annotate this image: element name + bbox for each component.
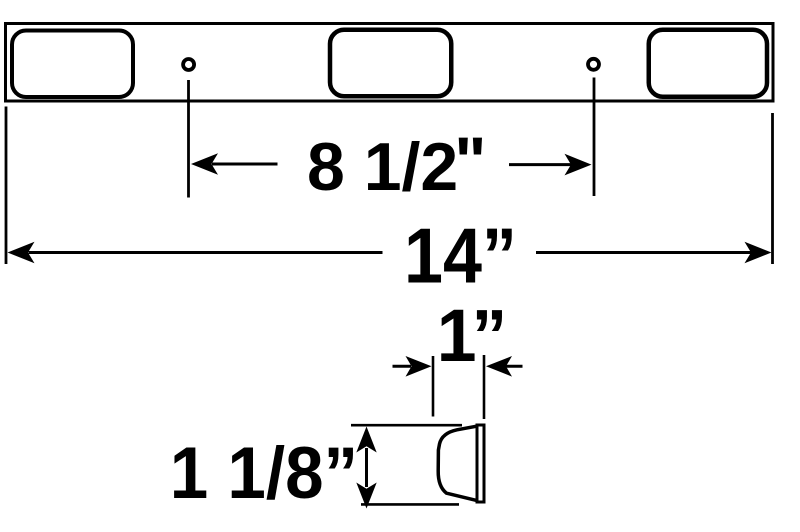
svg-text:1 1/8”: 1 1/8” bbox=[170, 433, 358, 514]
svg-text:8 1/2": 8 1/2" bbox=[307, 123, 487, 205]
svg-text:14”: 14” bbox=[404, 212, 517, 299]
